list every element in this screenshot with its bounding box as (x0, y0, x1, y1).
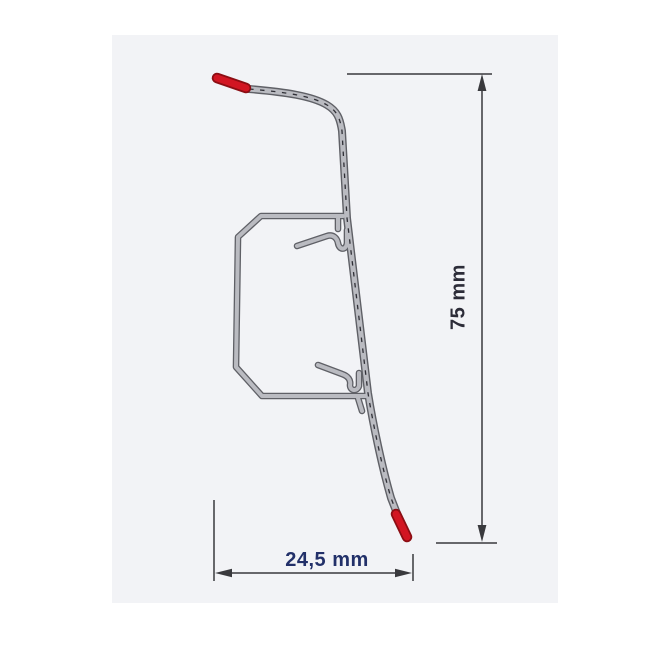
width-dimension-label: 24,5 mm (285, 549, 369, 571)
profile-diagram: 75 mm 24,5 mm (0, 0, 665, 665)
height-dimension-label: 75 mm (447, 264, 469, 330)
diagram-stage: 75 mm 24,5 mm (0, 0, 665, 665)
panel-background (112, 35, 558, 603)
